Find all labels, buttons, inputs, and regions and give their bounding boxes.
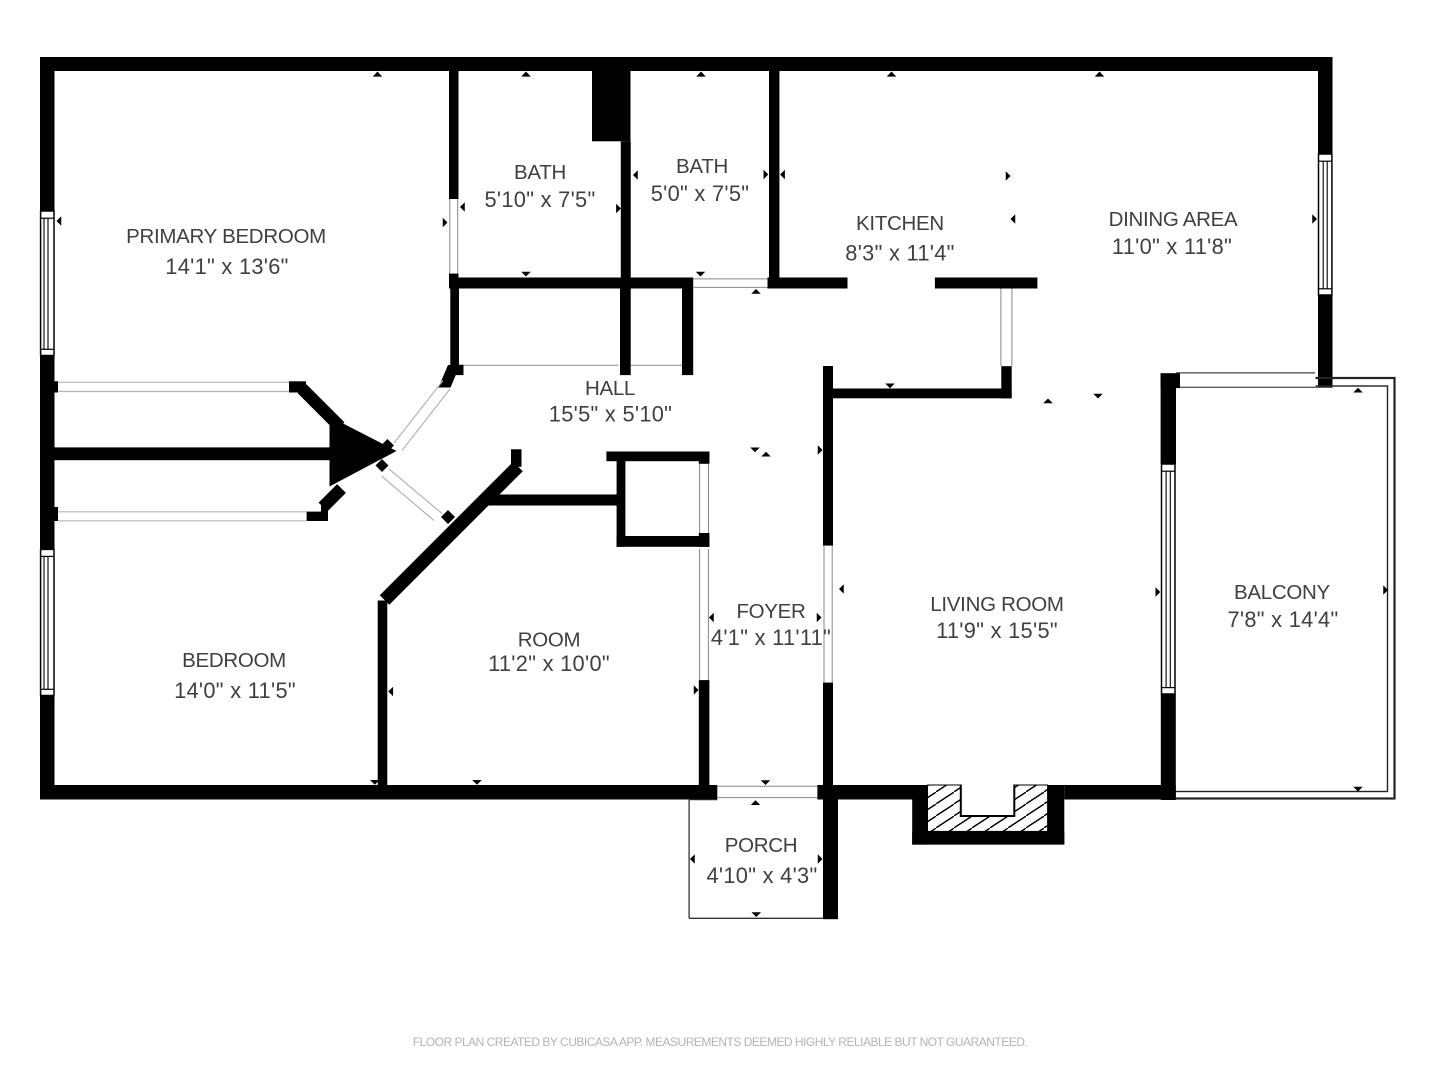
svg-text:11'9" x 15'5": 11'9" x 15'5" [936,618,1058,643]
svg-text:BATH: BATH [676,155,728,178]
svg-text:DINING AREA: DINING AREA [1109,208,1238,231]
svg-text:14'0" x 11'5": 14'0" x 11'5" [174,678,296,703]
svg-text:PRIMARY BEDROOM: PRIMARY BEDROOM [126,225,326,248]
svg-text:HALL: HALL [585,377,635,400]
svg-text:KITCHEN: KITCHEN [856,212,944,235]
svg-text:5'10" x 7'5": 5'10" x 7'5" [484,187,595,212]
svg-text:11'2" x 10'0": 11'2" x 10'0" [488,651,610,676]
svg-text:FLOOR PLAN CREATED BY CUBICASA: FLOOR PLAN CREATED BY CUBICASA APP. MEAS… [413,1035,1028,1049]
svg-text:8'3" x 11'4": 8'3" x 11'4" [845,241,954,266]
svg-text:11'0" x 11'8": 11'0" x 11'8" [1112,234,1232,259]
svg-text:BEDROOM: BEDROOM [182,649,286,672]
svg-text:15'5" x 5'10": 15'5" x 5'10" [549,402,672,427]
svg-text:5'0" x 7'5": 5'0" x 7'5" [651,181,750,206]
svg-text:PORCH: PORCH [725,834,798,857]
svg-text:BALCONY: BALCONY [1234,581,1331,604]
svg-text:14'1" x 13'6": 14'1" x 13'6" [165,254,288,279]
svg-text:BATH: BATH [514,161,566,184]
svg-text:4'10" x 4'3": 4'10" x 4'3" [706,863,817,888]
svg-text:FOYER: FOYER [736,600,805,623]
svg-text:4'1" x 11'11": 4'1" x 11'11" [711,625,831,650]
svg-text:ROOM: ROOM [518,629,581,652]
svg-text:LIVING ROOM: LIVING ROOM [930,593,1063,616]
svg-text:7'8" x 14'4": 7'8" x 14'4" [1227,607,1338,632]
